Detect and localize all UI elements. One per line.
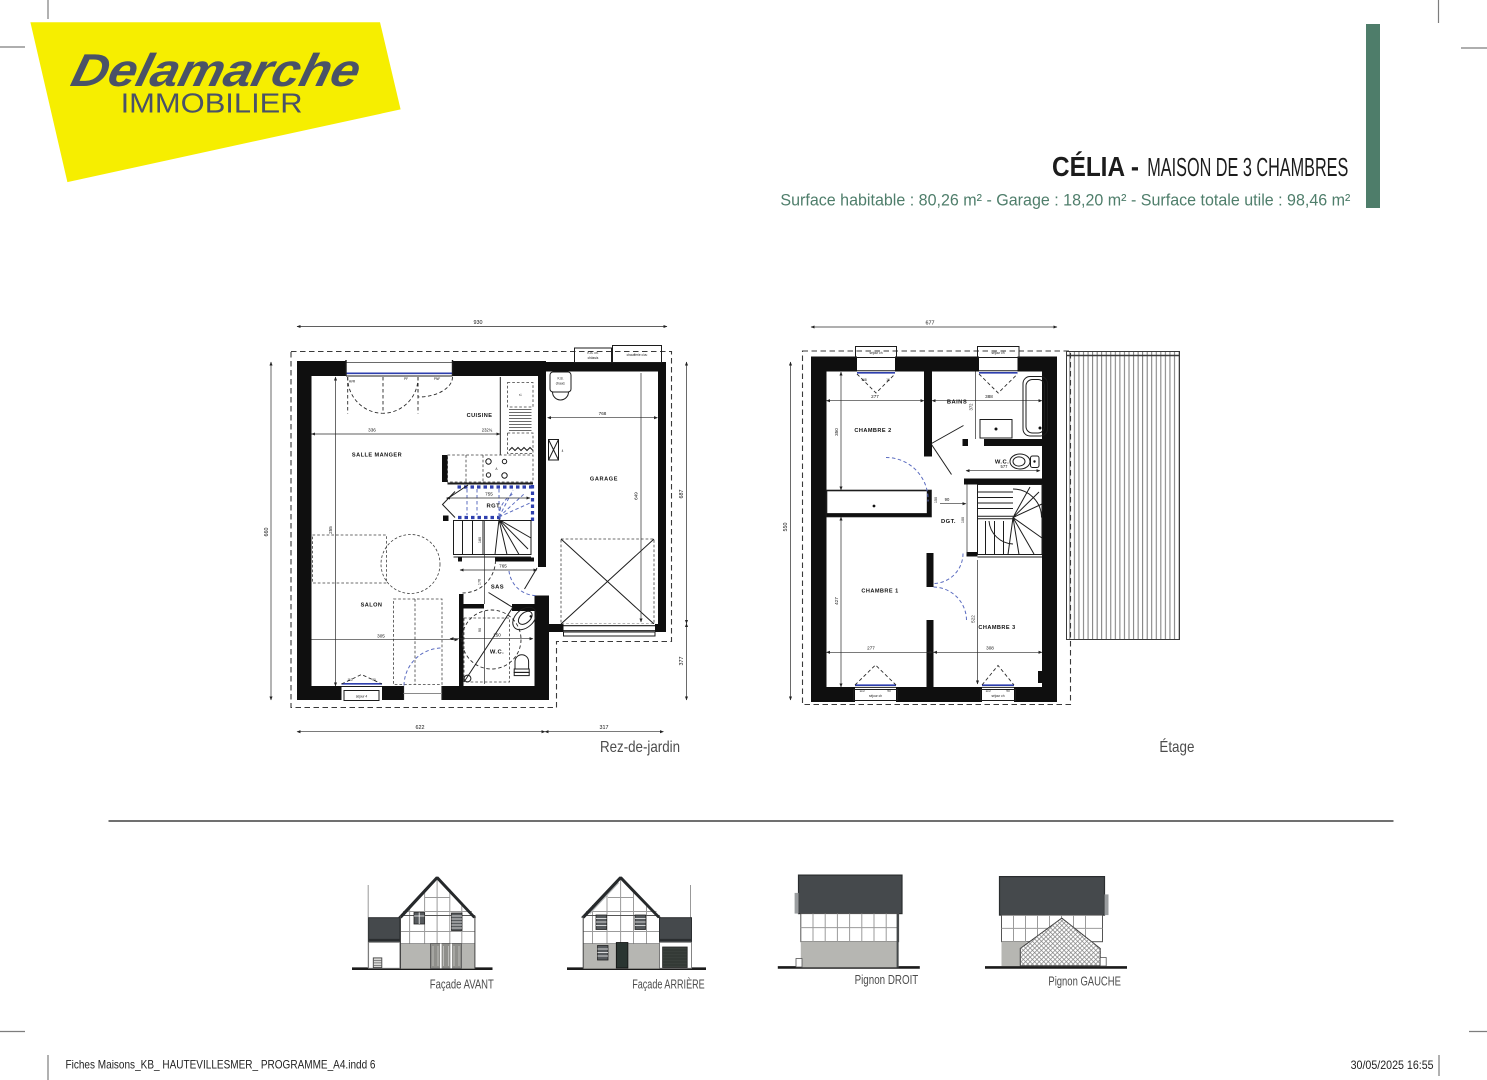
svg-text:427: 427: [834, 597, 839, 605]
svg-text:150: 150: [493, 632, 501, 637]
svg-text:Pignon DROIT: Pignon DROIT: [855, 973, 919, 987]
svg-text:308: 308: [986, 646, 994, 651]
svg-text:336: 336: [368, 428, 376, 433]
svg-text:Surface habitable : 80,26 m² -: Surface habitable : 80,26 m² - Garage : …: [780, 191, 1350, 210]
svg-text:180: 180: [478, 537, 482, 543]
svg-text:522: 522: [970, 615, 975, 623]
svg-text:CHAMBRE 2: CHAMBRE 2: [854, 428, 891, 434]
svg-text:16: 16: [886, 378, 890, 382]
svg-text:768: 768: [599, 411, 607, 416]
svg-text:séjour ch: séjour ch: [870, 351, 883, 355]
svg-text:30/05/2025 16:55: 30/05/2025 16:55: [1351, 1058, 1434, 1072]
svg-text:90: 90: [1006, 689, 1010, 693]
svg-text:255: 255: [328, 526, 333, 534]
svg-text:4: 4: [562, 449, 564, 453]
svg-text:RGT.: RGT.: [486, 504, 501, 510]
svg-text:622: 622: [416, 725, 425, 731]
svg-text:A: A: [495, 467, 498, 471]
svg-text:377: 377: [679, 657, 685, 666]
svg-text:Façade AVANT: Façade AVANT: [430, 978, 494, 992]
svg-text:350: 350: [834, 428, 839, 436]
svg-text:Rez-de-jardin: Rez-de-jardin: [600, 739, 680, 756]
svg-text:Façade ARRIÈRE: Façade ARRIÈRE: [632, 977, 705, 992]
svg-text:SALON: SALON: [361, 603, 383, 609]
svg-text:séjour ch: séjour ch: [992, 351, 1005, 355]
svg-text:765: 765: [499, 564, 507, 569]
svg-text:Fiches Maisons_KB_ HAUTEVILLES: Fiches Maisons_KB_ HAUTEVILLESMER_ PROGR…: [66, 1058, 376, 1072]
svg-text:90: 90: [887, 689, 891, 693]
svg-text:Étage: Étage: [1159, 737, 1194, 756]
svg-text:CHAMBRE 1: CHAMBRE 1: [861, 589, 898, 595]
svg-text:388: 388: [985, 394, 993, 399]
svg-text:châssis: châssis: [588, 356, 599, 360]
svg-text:305: 305: [377, 633, 385, 638]
svg-text:232¾: 232¾: [482, 428, 493, 433]
svg-text:chaufferie c/vu: chaufferie c/vu: [627, 353, 648, 357]
svg-text:372: 372: [969, 403, 974, 411]
svg-text:277: 277: [867, 646, 875, 651]
svg-text:W.C.: W.C.: [490, 650, 504, 656]
svg-text:K.B. ch.: K.B. ch.: [587, 351, 598, 355]
svg-text:séjour ch: séjour ch: [869, 694, 882, 698]
svg-text:PF: PF: [404, 377, 408, 381]
svg-text:176: 176: [478, 579, 482, 585]
svg-text:DGT.: DGT.: [941, 519, 956, 525]
svg-text:100: 100: [961, 517, 965, 523]
svg-text:CUISINE: CUISINE: [467, 413, 493, 419]
svg-text:110: 110: [347, 678, 352, 682]
svg-text:IMMOBILIER: IMMOBILIER: [121, 88, 303, 119]
svg-text:110: 110: [859, 689, 864, 693]
svg-text:SAS: SAS: [491, 585, 504, 591]
svg-text:90: 90: [478, 628, 482, 632]
svg-text:90: 90: [372, 678, 376, 682]
svg-text:755: 755: [485, 492, 493, 497]
svg-text:GARAGE: GARAGE: [590, 477, 618, 483]
svg-text:649: 649: [634, 492, 639, 500]
svg-text:séjour 4: séjour 4: [356, 695, 368, 699]
svg-text:317: 317: [600, 725, 609, 731]
svg-text:677: 677: [926, 320, 935, 326]
svg-text:CÉLIA -: CÉLIA -: [1052, 151, 1139, 182]
svg-text:AVR: AVR: [349, 380, 356, 384]
svg-text:168: 168: [861, 378, 867, 382]
svg-text:chaud.: chaud.: [556, 382, 566, 386]
svg-text:SALLE MANGER: SALLE MANGER: [352, 453, 402, 459]
svg-text:150: 150: [934, 497, 938, 503]
svg-text:PNF: PNF: [434, 377, 440, 381]
svg-text:Pignon GAUCHE: Pignon GAUCHE: [1048, 975, 1121, 989]
svg-text:577: 577: [1001, 464, 1009, 469]
svg-text:110: 110: [985, 689, 990, 693]
svg-text:90: 90: [945, 497, 950, 502]
svg-text:CHAMBRE 3: CHAMBRE 3: [978, 625, 1015, 631]
svg-text:r.l.: r.l.: [519, 393, 522, 397]
svg-text:930: 930: [474, 320, 483, 326]
svg-text:MAISON DE 3 CHAMBRES: MAISON DE 3 CHAMBRES: [1147, 152, 1348, 182]
svg-text:660: 660: [264, 528, 270, 537]
svg-text:K.B.: K.B.: [557, 377, 563, 381]
svg-text:séjour ch: séjour ch: [992, 694, 1005, 698]
svg-text:550: 550: [783, 523, 789, 532]
svg-text:687: 687: [679, 490, 685, 499]
svg-text:277: 277: [871, 394, 879, 399]
